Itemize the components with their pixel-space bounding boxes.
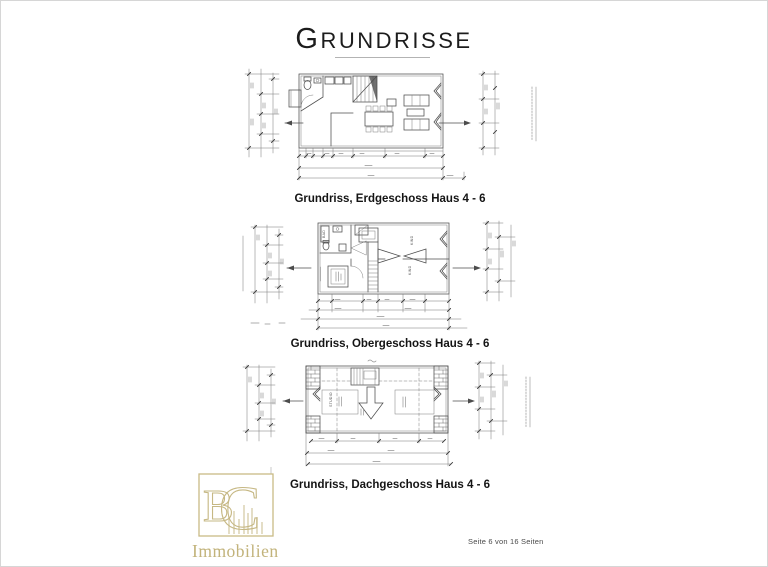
bathroom-fixtures <box>321 225 368 251</box>
interior-walls <box>318 225 449 281</box>
sofa-group <box>404 95 429 130</box>
room-label-studio: STUDIO <box>329 392 333 407</box>
window-symbols <box>440 231 447 279</box>
building-outline <box>306 360 448 433</box>
dimension-lines-right <box>475 361 530 439</box>
stair-direction-arrow <box>359 387 383 419</box>
door-swings <box>351 241 426 263</box>
logo-wordmark: Immobilien <box>192 541 279 561</box>
page-number-indicator: Seite 6 von 16 Seiten <box>468 537 544 546</box>
room-labels: STUDIO <box>329 392 342 407</box>
page-title: Grundrisse <box>1 23 767 56</box>
dimension-lines-bottom <box>306 433 453 466</box>
dimension-lines-left <box>243 365 275 441</box>
dining-table-and-chairs <box>365 106 393 132</box>
company-logo: B C Immobilien <box>189 467 304 565</box>
gable-wall-hatching <box>306 366 448 433</box>
dimension-lines-bottom <box>298 148 466 180</box>
staircase <box>351 368 379 385</box>
title-underline <box>335 57 430 58</box>
staircase <box>359 228 378 292</box>
erdgeschoss-floor-plan-drawing <box>235 59 545 191</box>
document-page: Grundrisse <box>0 0 768 567</box>
section-arrows <box>287 266 481 271</box>
dachgeschoss-floor-plan-drawing: STUDIO <box>233 357 533 472</box>
dimension-lines-left <box>243 225 283 303</box>
building-outline <box>318 223 449 294</box>
wardrobe <box>328 266 348 287</box>
dimension-lines-right <box>479 71 536 155</box>
obergeschoss-caption: Grundriss, Obergeschoss Haus 4 - 6 <box>215 338 565 350</box>
obergeschoss-floor-plan-drawing: BAD KIND KIND <box>235 211 535 341</box>
dimension-lines-right <box>483 221 515 301</box>
staircase <box>353 76 377 102</box>
dimension-lines-left <box>245 69 279 157</box>
interior-walls <box>301 76 353 146</box>
room-label-bad: BAD <box>322 230 326 238</box>
room-label-kind-bottom: KIND <box>408 265 412 275</box>
logo-monogram-c: C <box>219 475 260 543</box>
room-label-kind-top: KIND <box>410 235 414 245</box>
dimension-lines-bottom <box>251 294 467 330</box>
erdgeschoss-caption: Grundriss, Erdgeschoss Haus 4 - 6 <box>215 193 565 205</box>
bathroom-fixtures <box>304 77 321 90</box>
